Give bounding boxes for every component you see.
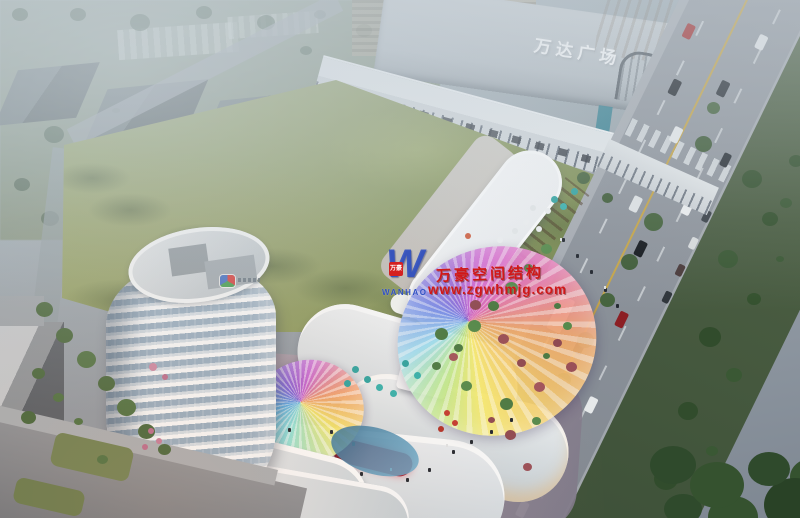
car [628, 195, 643, 213]
car [667, 78, 682, 96]
verge-trees [742, 170, 762, 188]
car [584, 396, 599, 414]
watermark: W 万豪 WANHAO 万豪空间结构 www.zgwhmjg.com [380, 250, 600, 310]
watermark-url: www.zgwhmjg.com [428, 282, 567, 297]
teal-umbrellas [352, 366, 359, 373]
distant-trees [12, 8, 28, 21]
median-trees [695, 136, 712, 152]
aerial-rendering-scene: 万达广场 [0, 0, 800, 518]
tower-logo [220, 275, 235, 287]
watermark-logo-badge: 万豪 [389, 262, 403, 276]
white-umbrellas [523, 219, 529, 225]
street-trees [36, 302, 53, 317]
corner-tree-mass [650, 446, 696, 484]
flower-shrubs [148, 428, 154, 434]
podium-trees-green [435, 328, 448, 340]
car [633, 240, 648, 258]
red-umbrellas [444, 410, 450, 416]
car [716, 80, 731, 98]
rooftop-box [168, 243, 210, 276]
tower-logo-text [238, 278, 260, 282]
car [754, 34, 769, 51]
watermark-logo: W 万豪 WANHAO [386, 250, 432, 302]
